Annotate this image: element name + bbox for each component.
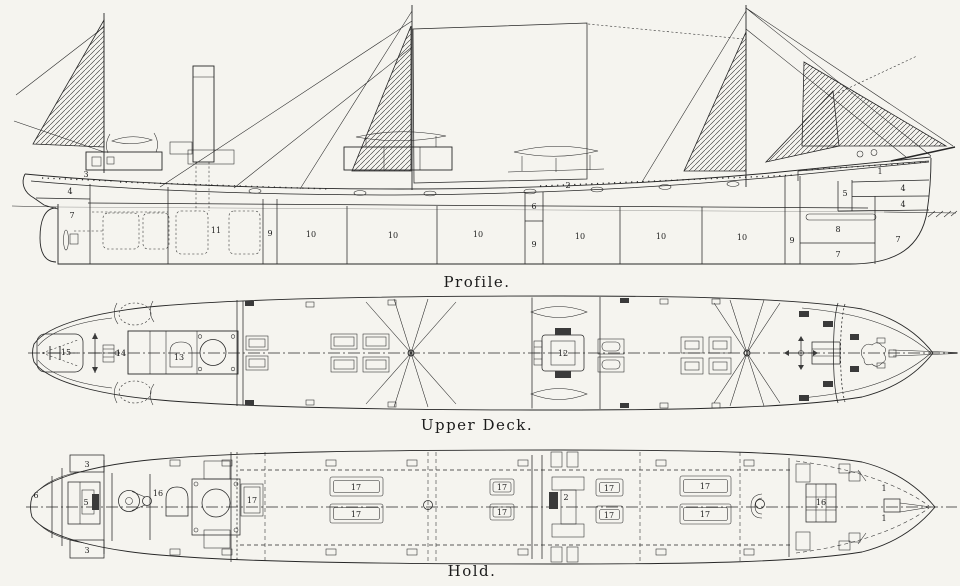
profile-view: 34711910101026910101098715447 Profile.: [12, 5, 957, 291]
upper-deck-caption: Upper Deck.: [421, 416, 533, 434]
compartment-number: 1: [877, 167, 882, 176]
compartment-number: 14: [116, 349, 126, 358]
compartment-number: 15: [61, 348, 71, 357]
compartment-number: 17: [700, 510, 710, 519]
compartment-number: 4: [900, 184, 905, 193]
chain-pipe: [751, 494, 762, 518]
propeller: [64, 230, 69, 250]
capstan: [784, 336, 818, 370]
compartment-number: 4: [67, 187, 72, 196]
compartment-number: 2: [565, 181, 570, 190]
compartment-number: 16: [153, 489, 163, 498]
compartment-number: 9: [267, 229, 272, 238]
compartment-number: 17: [604, 511, 614, 520]
compartment-number: 13: [174, 353, 184, 362]
profile-compartment-labels: 34711910101026910101098715447: [67, 167, 905, 259]
compartment-number: 16: [816, 498, 826, 507]
compartment-number: 3: [84, 460, 89, 469]
compartment-number: 10: [306, 230, 316, 239]
compartment-number: 10: [575, 232, 585, 241]
frame-chocks: [170, 460, 754, 555]
compartment-number: 17: [351, 510, 361, 519]
compartment-number: 7: [835, 250, 840, 259]
compartment-number: 10: [388, 231, 398, 240]
hold-caption: Hold.: [448, 562, 497, 580]
engine-cylinder: [166, 487, 188, 516]
funnel-opening: [200, 340, 226, 366]
compartment-number: 8: [835, 225, 840, 234]
hull-outline: [23, 157, 931, 264]
compartment-number: 17: [351, 483, 361, 492]
breasthook: [884, 499, 931, 512]
compartment-number: 17: [700, 482, 710, 491]
compartment-number: 12: [558, 349, 568, 358]
ballast-tanks: [241, 476, 731, 524]
compartment-number: 6: [33, 491, 38, 500]
compartment-number: 17: [497, 508, 507, 517]
pillar: [756, 500, 765, 509]
jib-sail: [802, 62, 946, 146]
compartment-number: 6: [531, 202, 536, 211]
rudder: [40, 208, 56, 262]
compartment-number: 4: [900, 200, 905, 209]
compartment-number: 5: [83, 498, 88, 507]
davits: [106, 133, 157, 153]
upper-deck-view: 15141312 Upper Deck.: [28, 296, 958, 434]
bowsprit: [891, 147, 955, 161]
compartment-number: 17: [497, 483, 507, 492]
boiler: [202, 489, 230, 517]
compartment-number: 3: [84, 546, 89, 555]
compartment-number: 5: [842, 189, 847, 198]
rail-line: [25, 157, 931, 189]
profile-caption: Profile.: [443, 273, 510, 291]
compartment-number: 10: [473, 230, 483, 239]
compartment-number: 1: [881, 514, 886, 523]
compartment-number: 10: [737, 233, 747, 242]
profile-bulkheads: [36, 176, 929, 264]
poop-deckhouse: [86, 152, 162, 170]
boat: [112, 137, 152, 144]
compartment-number: 2: [563, 493, 568, 502]
compartment-number: 9: [789, 236, 794, 245]
upper-deck-compartment-labels: 15141312: [61, 348, 568, 362]
compartment-number: 1: [881, 484, 886, 493]
compartment-number: 10: [656, 232, 666, 241]
compartment-number: 7: [69, 211, 74, 220]
compartment-number: 7: [895, 235, 900, 244]
deck-line: [31, 162, 929, 195]
skylights: [246, 334, 731, 374]
hold-machinery: [119, 461, 241, 548]
compartment-number: 9: [531, 240, 536, 249]
compartment-number: 17: [604, 484, 614, 493]
ship-plans-page: 34711910101026910101098715447 Profile.: [0, 0, 960, 586]
hold-compartment-labels: 63351617171717172171717171611: [33, 460, 886, 555]
hold-view: 63351617171717172171717171611 Hold.: [26, 450, 957, 580]
ship-plans-drawing: 34711910101026910101098715447 Profile.: [0, 0, 960, 586]
compartment-number: 3: [83, 170, 88, 179]
compartment-number: 11: [211, 226, 221, 235]
main-sail-outline: [413, 23, 587, 183]
funnel: [193, 66, 214, 162]
compartment-number: 17: [247, 496, 257, 505]
boat: [514, 146, 598, 156]
